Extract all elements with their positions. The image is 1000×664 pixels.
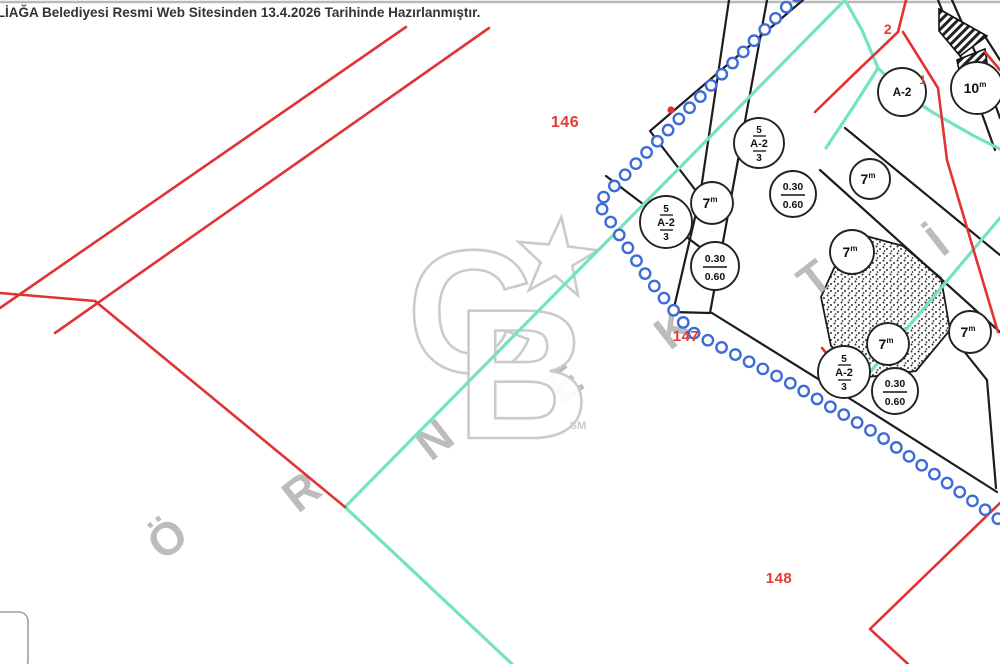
teal-line	[826, 68, 878, 148]
boundary-dot	[605, 217, 615, 227]
boundary-dot	[785, 378, 795, 388]
boundary-dot	[852, 417, 862, 427]
boundary-dot	[674, 114, 684, 124]
boundary-dot	[663, 125, 673, 135]
parcel-number: 146	[551, 114, 579, 131]
boundary-dot	[744, 357, 754, 367]
zoning-map: ÖRNEKTİ C B SM 5A-230.300.607m5A-237m0.3…	[0, 0, 1000, 664]
parcel-number: 148	[766, 570, 793, 587]
boundary-dot	[623, 243, 633, 253]
zone-circle: 7m	[850, 159, 890, 199]
teal-line	[345, 507, 512, 664]
boundary-dot	[781, 2, 791, 12]
zone-circle-text: 0.60	[783, 199, 804, 211]
boundary-dot	[865, 425, 875, 435]
boundary-dot	[760, 24, 770, 34]
red-line	[95, 301, 345, 507]
red-survey-dot	[667, 106, 674, 113]
zone-circle-text: A-2	[657, 217, 675, 229]
boundary-dot	[716, 342, 726, 352]
parcel-number: 147	[673, 328, 700, 345]
boundary-dot	[652, 136, 662, 146]
boundary-dot	[597, 204, 607, 214]
zone-circle: 7m	[830, 230, 874, 274]
boundary-dot	[598, 192, 608, 202]
zone-circle-text: 3	[663, 232, 669, 243]
boundary-dot	[631, 158, 641, 168]
boundary-dot	[730, 349, 740, 359]
boundary-dot	[839, 409, 849, 419]
boundary-dot	[659, 293, 669, 303]
boundary-dot	[993, 513, 1000, 523]
zone-circle: 5A-23	[640, 196, 692, 248]
boundary-dot	[771, 371, 781, 381]
parcel-line	[955, 340, 996, 488]
boundary-dot	[609, 181, 619, 191]
map-page: ALİAĞA Belediyesi Resmi Web Sitesinden 1…	[0, 0, 1000, 664]
boundary-dot	[792, 0, 802, 1]
boundary-dot	[878, 433, 888, 443]
map-control-button[interactable]	[0, 612, 28, 664]
boundary-dot	[738, 47, 748, 57]
watermark-letter: Ö	[137, 507, 197, 570]
boundary-dot	[717, 69, 727, 79]
boundary-dot	[798, 386, 808, 396]
zone-circle: 0.300.60	[872, 368, 918, 414]
boundary-dot	[929, 469, 939, 479]
zone-circle-text: 0.60	[885, 396, 906, 408]
red-line	[870, 503, 1000, 664]
zone-circle-text: 0.30	[783, 181, 804, 193]
zone-circle-text: 3	[756, 153, 762, 164]
boundary-dot	[684, 103, 694, 113]
zone-circle-text: A-2	[835, 367, 853, 379]
boundary-dot	[703, 335, 713, 345]
boundary-dot	[668, 305, 678, 315]
parcel-line	[650, 0, 803, 196]
boundary-dot	[980, 505, 990, 515]
boundary-dot	[891, 442, 901, 452]
zone-circle-text: 5	[756, 125, 762, 136]
boundary-dot	[620, 170, 630, 180]
boundary-dot	[770, 13, 780, 23]
parcel-number: 1	[919, 73, 926, 87]
boundary-dot	[942, 478, 952, 488]
zone-circles: 5A-230.300.607m5A-237m0.300.607m7m7m5A-2…	[640, 62, 1000, 414]
zone-circle: 0.300.60	[770, 171, 816, 217]
zone-circle: 5A-23	[818, 346, 870, 398]
red-line	[0, 27, 406, 308]
zone-circle-text: 3	[841, 382, 847, 393]
cb-logo-sm-mark: SM	[570, 420, 587, 432]
zone-circle: 7m	[691, 182, 733, 224]
boundary-dot	[825, 402, 835, 412]
boundary-dot	[706, 80, 716, 90]
boundary-dot	[904, 451, 914, 461]
zone-circle: 7m	[867, 323, 909, 365]
boundary-dot	[916, 460, 926, 470]
zone-circle: 7m	[949, 311, 991, 353]
boundary-dot	[695, 91, 705, 101]
boundary-dot	[749, 35, 759, 45]
boundary-dot	[641, 147, 651, 157]
boundary-dot	[812, 394, 822, 404]
boundary-dot	[649, 281, 659, 291]
zone-circle: 0.300.60	[691, 242, 739, 290]
zone-circle: 5A-23	[734, 118, 784, 168]
zone-circle-text: A-2	[750, 138, 768, 150]
zone-circle-text: 5	[841, 354, 847, 365]
zone-circle-text: A-2	[893, 87, 912, 99]
watermark-letter: İ	[916, 217, 958, 266]
boundary-dot	[758, 364, 768, 374]
boundary-dot	[640, 268, 650, 278]
zone-circle-text: 0.60	[705, 271, 726, 283]
zone-circle-text: 5	[663, 204, 669, 215]
boundary-dot	[967, 496, 977, 506]
zone-circle: 10m	[951, 62, 1000, 114]
parcel-number: 2	[884, 21, 892, 37]
page-title: ALİAĞA Belediyesi Resmi Web Sitesinden 1…	[0, 5, 480, 20]
zone-circle-text: 0.30	[705, 253, 726, 265]
boundary-dot	[631, 256, 641, 266]
boundary-dot	[955, 487, 965, 497]
boundary-dot	[614, 230, 624, 240]
boundary-dot	[678, 317, 688, 327]
zone-circle-text: 0.30	[885, 378, 906, 390]
boundary-dot	[727, 58, 737, 68]
